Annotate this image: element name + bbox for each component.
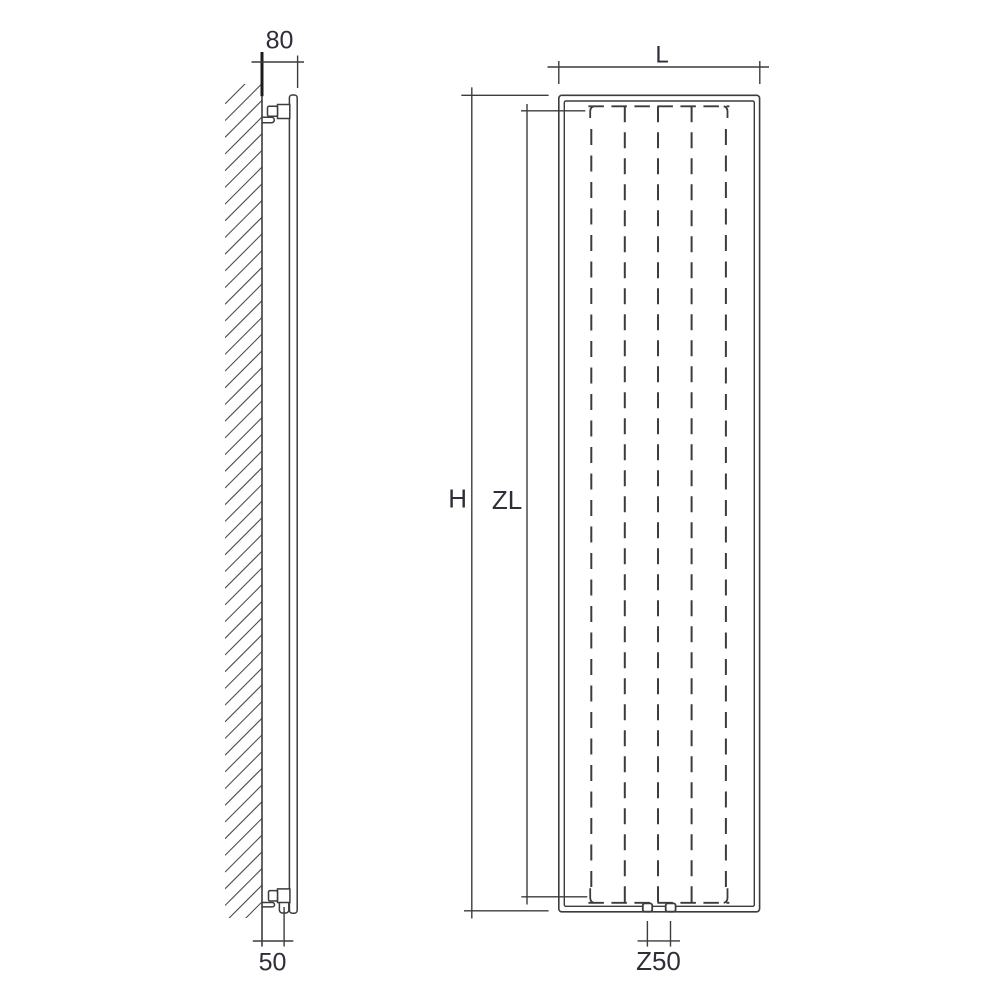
svg-text:ZL: ZL: [492, 485, 522, 515]
svg-text:H: H: [448, 484, 467, 514]
svg-text:80: 80: [266, 27, 294, 55]
svg-text:50: 50: [259, 949, 287, 977]
svg-text:L: L: [655, 42, 668, 69]
svg-text:Z50: Z50: [636, 946, 681, 976]
